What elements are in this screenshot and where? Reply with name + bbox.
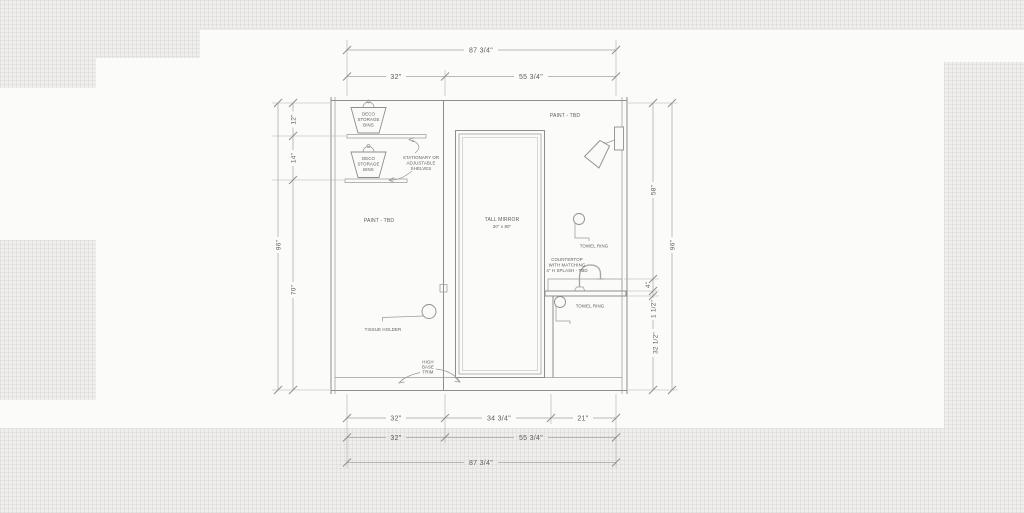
paint-right-label: PAINT - TBD xyxy=(550,113,581,119)
bin1-line3: BINS xyxy=(363,123,374,128)
sconce-light-icon xyxy=(585,127,624,168)
mirror-size-label: 30" x 80" xyxy=(493,224,512,229)
dim-bottom-row2-left: 32" xyxy=(390,435,401,442)
tall-mirror xyxy=(456,131,545,378)
dim-bottom-overall: 87 3/4" xyxy=(469,460,493,467)
dim-bottom-row2-right: 55 3/4" xyxy=(519,435,543,442)
countertop-line1: COUNTERTOP xyxy=(551,257,583,262)
shelf-1 xyxy=(347,135,426,139)
paint-left-label: PAINT - TBD xyxy=(364,218,395,224)
shelves-line2: ADJUSTABLE xyxy=(407,161,436,166)
bin1-line2: STORAGE xyxy=(357,117,379,122)
dim-top-right: 55 3/4" xyxy=(519,74,543,81)
elevation-drawing-page: DECO STORAGE BINS DECO STORAGE BINS STAT… xyxy=(0,0,1024,513)
dim-left-lower: 70" xyxy=(291,284,298,295)
towel-ring-upper-icon xyxy=(574,214,590,242)
dim-left-overall: 96" xyxy=(276,239,283,250)
shelf-2 xyxy=(345,179,407,183)
dim-left-mid: 14" xyxy=(291,152,298,163)
bin1-line1: DECO xyxy=(362,112,376,117)
mirror-title-label: TALL MIRROR xyxy=(485,217,520,223)
dim-bottom-seg3: 21" xyxy=(577,416,588,423)
bin2-line2: STORAGE xyxy=(357,162,379,167)
dim-bottom-seg2: 34 3/4" xyxy=(487,416,511,423)
towel-ring-upper-label: TOWEL RING xyxy=(580,244,609,249)
towel-ring-lower-label: TOWEL RING xyxy=(576,304,605,309)
dim-right-overall: 96" xyxy=(670,239,677,250)
backsplash xyxy=(548,279,622,291)
shelves-label: STATIONARY OR ADJUSTABLE SHELVES xyxy=(403,155,439,171)
dim-right-splash: 4" xyxy=(645,281,652,288)
dim-right-lower: 32 1/2" xyxy=(653,332,660,354)
countertop-label: COUNTERTOP WITH MATCHING 4" H SPLASH - T… xyxy=(546,257,587,273)
bathroom-elevation-drawing: DECO STORAGE BINS DECO STORAGE BINS STAT… xyxy=(0,0,1024,513)
shelves-line1: STATIONARY OR xyxy=(403,155,439,160)
base-trim-line3: TRIM xyxy=(422,370,433,375)
dims-right: 58" 4" 1 1/2" 32 1/2" 96" xyxy=(624,99,678,394)
dims-top: 87 3/4" 32" 55 3/4" xyxy=(343,40,620,96)
dim-right-counter: 1 1/2" xyxy=(651,300,658,318)
dims-bottom: 32" 34 3/4" 21" 32" 55 3/4" 87 3/4" xyxy=(343,394,620,468)
dim-right-upper: 58" xyxy=(651,184,658,195)
countertop xyxy=(545,291,626,296)
bin2-line1: DECO xyxy=(362,156,376,161)
towel-ring-lower-icon xyxy=(555,297,571,325)
bin2-line3: BINS xyxy=(363,167,374,172)
tissue-holder-label: TISSUE HOLDER xyxy=(365,327,402,332)
dim-bottom-seg1: 32" xyxy=(390,416,401,423)
dim-left-top: 12" xyxy=(291,114,298,125)
dim-top-left: 32" xyxy=(390,74,401,81)
countertop-line3: 4" H SPLASH - TBD xyxy=(546,268,587,273)
dim-top-overall: 87 3/4" xyxy=(469,48,493,55)
tissue-holder-icon xyxy=(383,305,437,322)
shelves-line3: SHELVES xyxy=(411,166,432,171)
countertop-line2: WITH MATCHING xyxy=(549,263,586,268)
base-trim-label: HIGH BASE TRIM xyxy=(422,360,434,375)
